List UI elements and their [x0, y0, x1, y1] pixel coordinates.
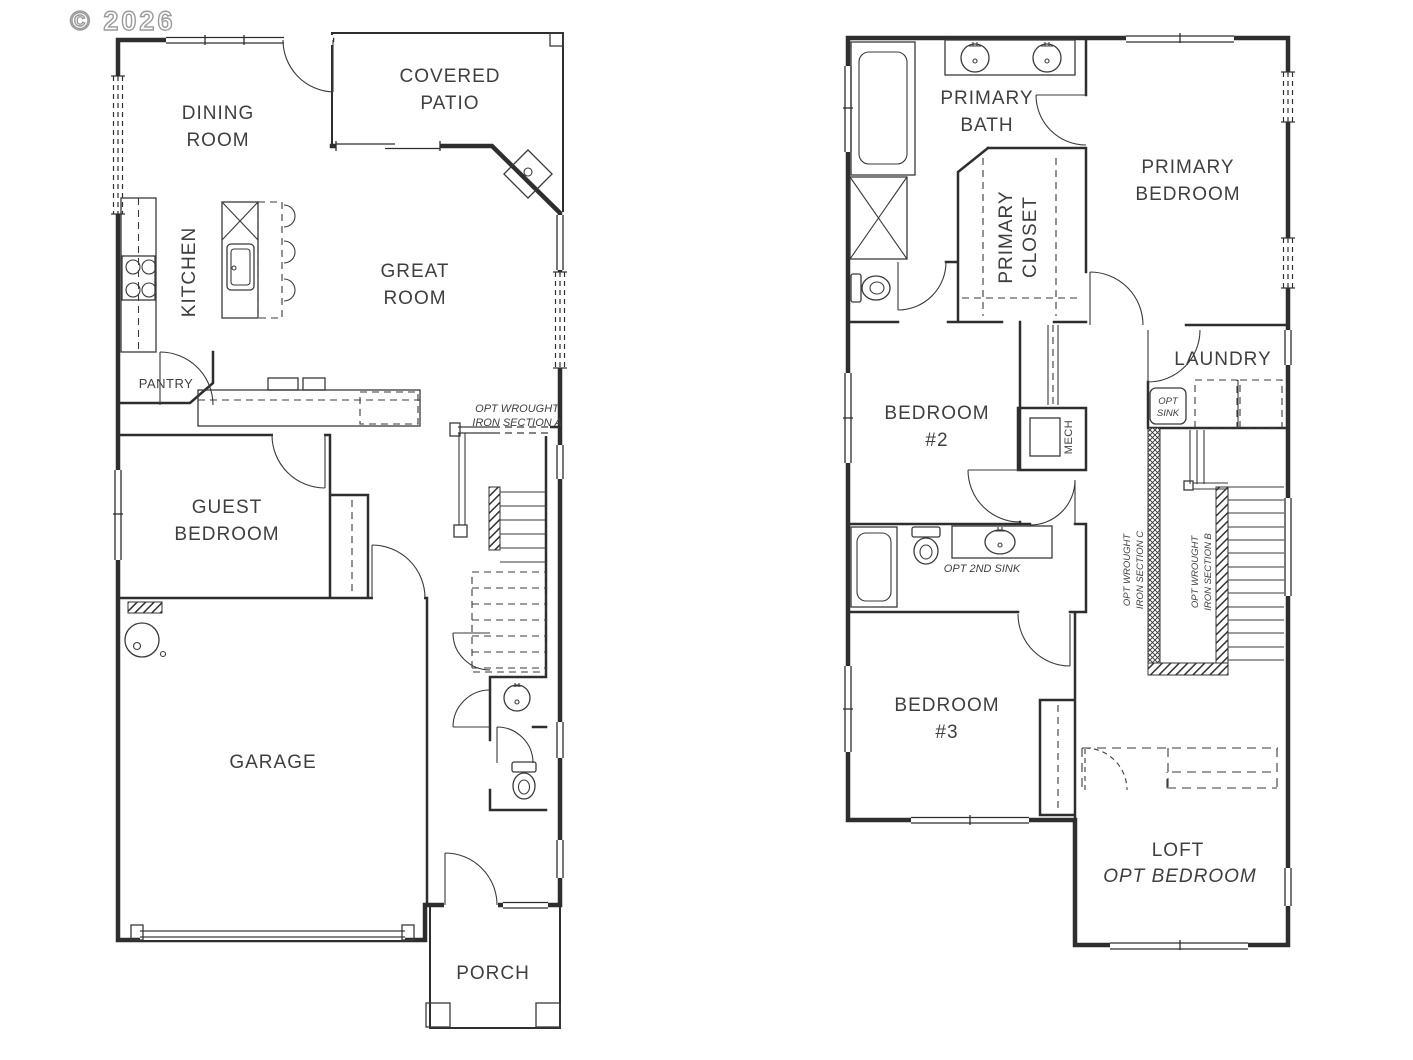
- label-bedroom2-line1: BEDROOM: [884, 403, 989, 424]
- powder-room-fixtures: [504, 683, 536, 799]
- stair-newel-post: [489, 487, 500, 550]
- island-stools: [284, 205, 295, 301]
- label-iron-section-a-line1: OPT WROUGHT: [475, 403, 560, 415]
- label-opt-sink-line1: OPT: [1158, 396, 1179, 407]
- primary-bath-fixtures: [850, 40, 1075, 302]
- label-dining-room-line1: DINING: [182, 103, 255, 124]
- powder-sink-icon: [504, 683, 530, 711]
- bedroom3-left-window: [843, 666, 853, 752]
- guest-left-window: [113, 470, 123, 560]
- label-great-room-line1: GREAT: [380, 261, 449, 282]
- floor2-top-window: [1126, 33, 1234, 43]
- stair-rail-bottom: [1148, 663, 1228, 675]
- label-porch: PORCH: [456, 963, 530, 984]
- first-floor-plan: DINING ROOM COVERED PATIO KITCHEN GREAT …: [111, 33, 567, 1028]
- label-mech: MECH: [1063, 420, 1075, 454]
- primary-bedroom-right-window-1: [1281, 72, 1295, 122]
- label-iron-section-a-line2: IRON SECTION A: [472, 417, 561, 429]
- double-vanity-icon: [945, 40, 1075, 75]
- bedroom2-left-window: [843, 373, 853, 463]
- floorplan-sheet: © 2026: [0, 0, 1413, 1060]
- hall-right-window-2: [555, 840, 565, 878]
- primary-bedroom-right-window-2: [1281, 238, 1295, 288]
- label-bedroom2-line2: #2: [925, 430, 948, 451]
- floor1-doors: [160, 40, 533, 905]
- stair-rail-left: [1148, 428, 1160, 675]
- shower-icon: [850, 177, 907, 259]
- greatroom-right-window-mulled: [553, 272, 567, 368]
- kitchen-fixtures: [121, 198, 420, 426]
- mech-unit-icon: [1030, 418, 1060, 456]
- water-heater-icon: [125, 623, 166, 657]
- loft-opt-closet: [1082, 748, 1278, 790]
- primary-tub-icon: [851, 42, 915, 175]
- hall-vanity-icon: [952, 526, 1052, 558]
- copyright-watermark: © 2026: [70, 6, 175, 36]
- entry-front-window: [503, 900, 548, 910]
- label-laundry: LAUNDRY: [1174, 349, 1271, 370]
- floorplan-drawing: © 2026: [0, 0, 1413, 1060]
- label-loft-line1: LOFT: [1152, 840, 1205, 861]
- label-kitchen: KITCHEN: [179, 227, 200, 317]
- cooktop-icon: [122, 256, 156, 300]
- label-primary-bath-line1: PRIMARY: [940, 88, 1033, 109]
- label-iron-section-b-line2: IRON SECTION B: [1203, 533, 1214, 611]
- label-iron-section-c-line1: OPT WROUGHT: [1122, 533, 1133, 606]
- stair-right-window: [555, 445, 565, 479]
- corner-fireplace-icon: [504, 150, 552, 198]
- label-iron-section-b-line1: OPT WROUGHT: [1190, 535, 1201, 608]
- dining-left-window: [111, 76, 125, 214]
- loft-right-window: [1283, 868, 1293, 906]
- primary-toilet-icon: [851, 274, 890, 302]
- hall-right-window-1: [555, 722, 565, 758]
- dryer-icon: [1240, 380, 1282, 428]
- label-opt-2nd-sink: OPT 2ND SINK: [944, 563, 1021, 575]
- label-great-room-line2: ROOM: [383, 288, 446, 309]
- floor2-stairwell: [1148, 428, 1284, 675]
- kitchen-counter-lower: [198, 378, 420, 426]
- label-primary-closet-line2: CLOSET: [1020, 196, 1041, 278]
- label-loft-line2: OPT BEDROOM: [1103, 866, 1257, 887]
- label-bedroom3-line1: BEDROOM: [894, 695, 999, 716]
- label-iron-section-c-line2: IRON SECTION C: [1135, 531, 1146, 609]
- dining-top-window: [166, 35, 284, 45]
- label-primary-bedroom-line2: BEDROOM: [1135, 184, 1240, 205]
- greatroom-right-window-upper: [555, 215, 565, 270]
- label-guest-bedroom-line2: BEDROOM: [174, 524, 279, 545]
- label-bedroom3-line2: #3: [935, 722, 958, 743]
- washer-icon: [1195, 380, 1237, 428]
- label-primary-closet-line1: PRIMARY: [996, 190, 1017, 283]
- label-dining-room-line2: ROOM: [186, 130, 249, 151]
- label-garage: GARAGE: [229, 752, 316, 773]
- loft-bottom-window: [1110, 940, 1248, 950]
- label-pantry: PANTRY: [139, 376, 194, 391]
- laundry-right-window: [1283, 330, 1293, 365]
- stairwell-right-window: [1283, 498, 1293, 596]
- second-floor-plan: PRIMARY BATH PRIMARY CLOSET PRIMARY BEDR…: [843, 33, 1295, 950]
- floor1-stairs: [450, 422, 550, 672]
- powder-toilet-icon: [512, 762, 536, 799]
- kitchen-island: [222, 202, 282, 318]
- hall-tub-icon: [851, 527, 897, 607]
- patio-slider-door: [336, 141, 440, 151]
- stair-rail-right: [1216, 487, 1228, 675]
- label-covered-patio-line2: PATIO: [420, 93, 479, 114]
- label-covered-patio-line1: COVERED: [400, 66, 501, 87]
- label-guest-bedroom-line1: GUEST: [192, 497, 262, 518]
- hall-rail-over-stairs: [1048, 325, 1058, 405]
- bedroom3-bottom-window: [911, 815, 1029, 825]
- hall-toilet-icon: [912, 527, 940, 564]
- label-primary-bedroom-line1: PRIMARY: [1141, 157, 1234, 178]
- garage-vent-icon: [128, 602, 162, 613]
- label-opt-sink-line2: SINK: [1157, 408, 1180, 419]
- label-primary-bath-line2: BATH: [960, 115, 1013, 136]
